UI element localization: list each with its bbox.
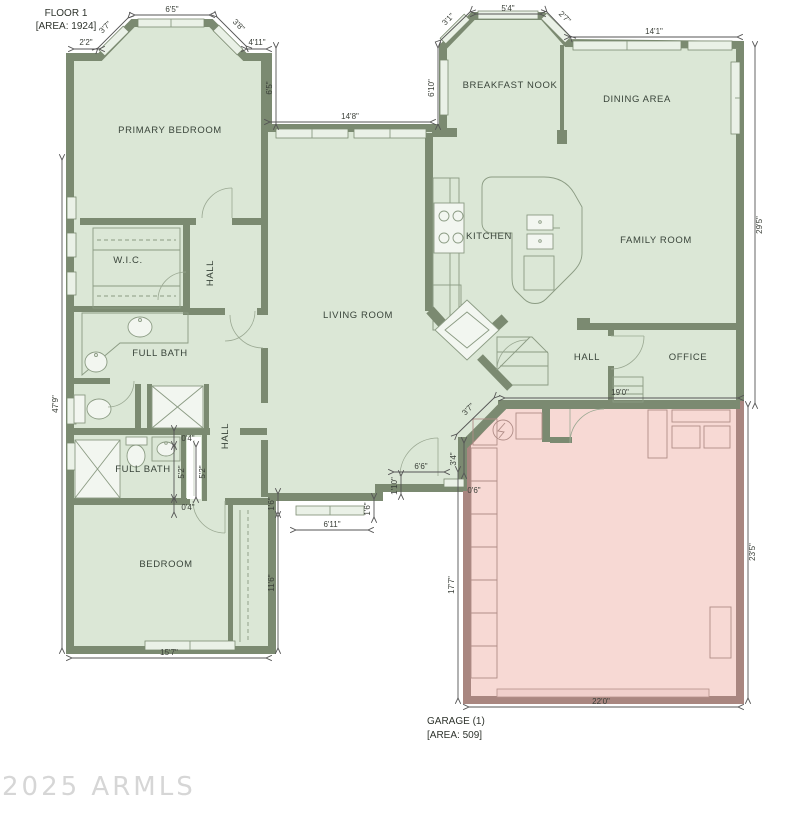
label-primary-bedroom: PRIMARY BEDROOM [118, 125, 222, 136]
floor-plan-page: 2'2" 3'7" 6'5" 3'8" 4'11" 47'9" 6'5" 14'… [0, 0, 800, 815]
floor-area: [AREA: 1924] [36, 21, 97, 32]
dim-right-upper: 29'5" [755, 216, 764, 234]
dim-entry-jog: 1'10" [390, 477, 399, 495]
garage-outline [467, 405, 740, 700]
dim-garage-left: 17'7" [447, 576, 456, 594]
dim-porch-jog: 1'6" [267, 497, 276, 510]
label-hall-bedroom: HALL [220, 423, 231, 449]
dim-living-window: 14'8" [341, 112, 359, 121]
dim-courtyard-right: 6'10" [427, 79, 436, 97]
label-wic: W.I.C. [113, 255, 142, 266]
garage-area: [AREA: 509] [427, 730, 482, 741]
dim-bath-top-gap: 0'4" [181, 434, 194, 443]
dim-nook-top: 5'4" [501, 4, 514, 13]
label-kitchen: KITCHEN [466, 231, 512, 242]
dim-bedroom-right: 11'6" [267, 574, 276, 591]
floor-title: FLOOR 1 [45, 8, 88, 19]
dim-entry-width: 6'6" [414, 462, 427, 471]
label-office: OFFICE [669, 352, 707, 363]
dim-bath-door-b: 5'2" [198, 465, 207, 478]
label-family-room: FAMILY ROOM [620, 235, 692, 246]
dim-bedroom-bottom: 15'7" [160, 648, 178, 657]
dim-entry-side: 3'4" [449, 452, 458, 465]
dim-dining-top: 14'1" [645, 27, 663, 36]
dim-bay-right-seg: 4'11" [248, 38, 265, 47]
dim-garage-right: 23'5" [748, 543, 757, 561]
floor-plan-canvas: 2'2" 3'7" 6'5" 3'8" 4'11" 47'9" 6'5" 14'… [0, 0, 800, 815]
dim-bedroom-window: 6'11" [323, 520, 340, 529]
garage-title: GARAGE (1) [427, 716, 485, 727]
dim-closet-jog: 1'6" [363, 502, 372, 515]
label-hall-rear: HALL [574, 352, 600, 363]
dim-bay-top: 6'5" [165, 5, 178, 14]
label-bedroom: BEDROOM [139, 559, 192, 570]
label-full-bath-1: FULL BATH [132, 348, 188, 359]
dim-bay-left-diag: 3'7" [97, 19, 113, 35]
dim-bath-bottom-gap: 0'4" [181, 503, 194, 512]
dim-courtyard-left: 6'5" [265, 81, 274, 94]
dim-entry-wall: 0'6" [467, 486, 480, 495]
dim-bay-right-diag: 3'8" [231, 17, 247, 33]
dim-bay-left-seg: 2'2" [79, 38, 92, 47]
label-full-bath-2: FULL BATH [115, 464, 171, 475]
dim-garage-bottom: 22'0" [592, 697, 610, 706]
label-living-room: LIVING ROOM [323, 310, 393, 321]
label-dining-area: DINING AREA [603, 94, 671, 105]
dim-nook-right-diag: 2'7" [557, 9, 573, 25]
garage-top-wall [498, 400, 740, 409]
watermark: 2025 ARMLS [2, 772, 196, 802]
dim-left-total: 47'9" [51, 395, 60, 413]
dim-bath-door-a: 5'2" [177, 465, 186, 478]
dim-hall-office-width: 19'0" [611, 388, 629, 397]
label-breakfast-nook: BREAKFAST NOOK [463, 80, 558, 91]
garage-door [497, 689, 709, 697]
label-hall-primary: HALL [205, 260, 216, 286]
